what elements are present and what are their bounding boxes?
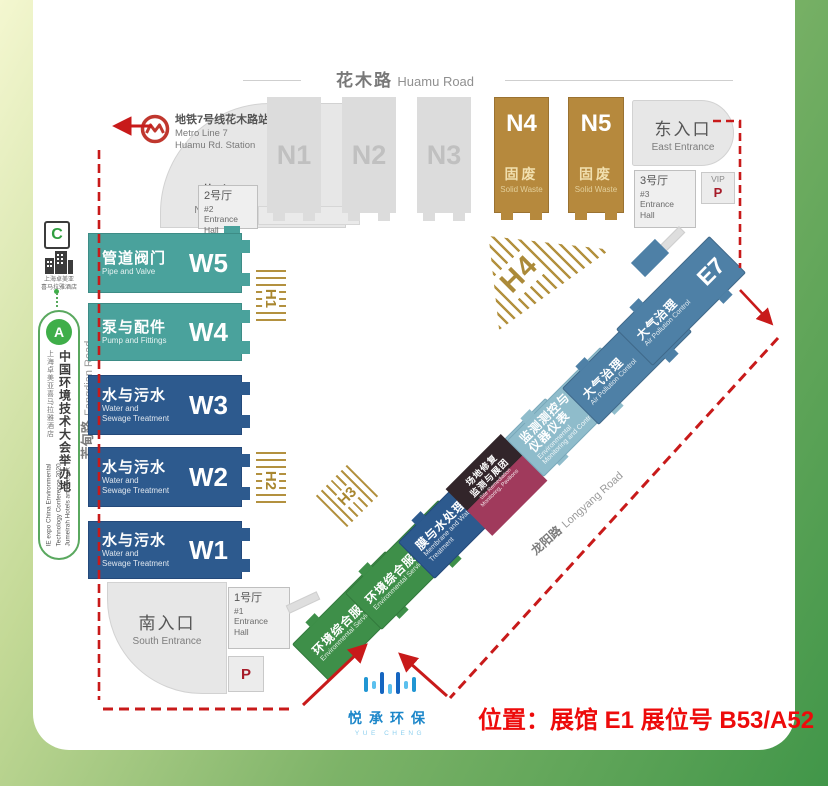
- road-line-right: [505, 80, 733, 81]
- venue-map: 花木路 Huamu Road 芳甸路 Fangdian Road 龙阳路 Lon…: [0, 0, 828, 786]
- huamu-road-zh: 花木路: [336, 71, 393, 90]
- entrance-hall-3: 3号厅 #3 Entrance Hall: [634, 170, 696, 228]
- hall-w1: 水与污水 Water and Sewage Treatment W1: [88, 521, 242, 579]
- hall-n2: N2: [342, 97, 396, 213]
- huamu-road-label: 花木路 Huamu Road: [300, 66, 510, 91]
- metro-icon: [140, 114, 170, 144]
- hall-n1: N1: [267, 97, 321, 213]
- c-badge: C: [44, 221, 70, 249]
- parking-south: P: [228, 656, 264, 692]
- hall-n4: N4 固废 Solid Waste: [494, 97, 549, 213]
- connector-dotted-line: [56, 293, 58, 307]
- east-entrance-area: 东入口 East Entrance: [632, 100, 734, 166]
- hotel-name-label: 上海卓美亚 喜马拉雅酒店: [30, 277, 88, 293]
- logo-name-zh: 悦承环保: [330, 708, 450, 728]
- road-line-left: [243, 80, 301, 81]
- hatch-h1: H1: [256, 270, 286, 326]
- entrance-hall-2: 2号厅 #2 Entrance Hall: [198, 185, 258, 229]
- logo-bars-icon: [358, 668, 422, 700]
- metro-station-label: 地铁7号线花木路站 Metro Line 7 Huamu Rd. Station: [175, 114, 269, 152]
- hatch-h2: H2: [256, 452, 286, 508]
- booth-location-note: 位置：展馆 E1 展位号 B53/A52: [478, 700, 814, 735]
- hall-n3: N3: [417, 97, 471, 213]
- logo-name-en: YUE CHENG: [330, 730, 450, 737]
- hall-w2: 水与污水 Water and Sewage Treatment W2: [88, 447, 242, 507]
- huamu-road-en: Huamu Road: [397, 74, 474, 89]
- badge-english-label: IE expo China Environmental Technology C…: [45, 450, 74, 546]
- hall-w4: 泵与配件 Pump and Fittings W4: [88, 303, 242, 361]
- yuecheng-logo: 悦承环保 YUE CHENG: [330, 668, 450, 737]
- conference-badge: A 上海卓美亚喜马拉雅酒店 中国环境技术大会举办地 IE expo China …: [38, 310, 80, 560]
- entrance-hall-1: 1号厅 #1 Entrance Hall: [228, 587, 290, 649]
- hall-w3: 水与污水 Water and Sewage Treatment W3: [88, 375, 242, 435]
- vip-parking: VIP P: [701, 172, 735, 204]
- hall-w5: 管道阀门 Pipe and Valve W5: [88, 233, 242, 293]
- hall-n5: N5 固废 Solid Waste: [568, 97, 624, 213]
- expo-logo-icon: A: [46, 319, 72, 345]
